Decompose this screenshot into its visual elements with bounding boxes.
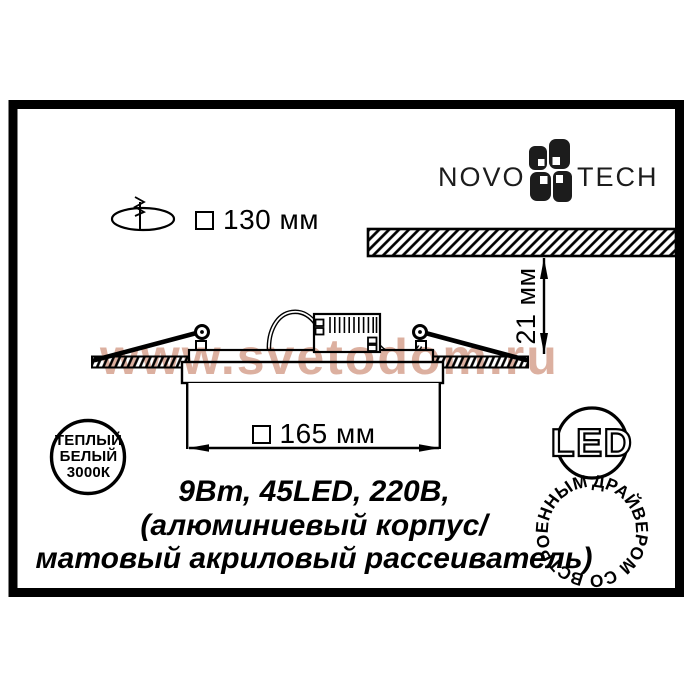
led-stamp-center: LED [551, 422, 634, 465]
driver-box [314, 314, 380, 352]
spec-line-2: (алюминиевый корпус/ [14, 509, 614, 543]
depth-dimension [540, 258, 548, 354]
width-dimension-label: 165 мм [186, 418, 441, 450]
warm-badge-line-3: 3000К [51, 465, 126, 481]
brand-logo-left: NOVO [438, 162, 524, 193]
clip-pivot-right [414, 326, 427, 339]
square-symbol-icon [195, 211, 214, 230]
cutout-dimension-label: 130 мм [195, 204, 319, 236]
spec-line-3: матовый акриловый рассеиватель) [14, 542, 614, 576]
warm-badge-line-1: ТЕПЛЫЙ [51, 433, 126, 449]
width-dimension-value: 165 мм [280, 418, 376, 450]
warm-white-badge: ТЕПЛЫЙ БЕЛЫЙ 3000К [51, 433, 126, 481]
body-upper-band [182, 362, 443, 383]
driver-wire-left [269, 312, 316, 351]
warm-badge-line-2: БЕЛЫЙ [51, 449, 126, 465]
diagram-canvas: LED ДРАЙВЕРОМ СО ВСТРОЕННЫМ [0, 0, 700, 700]
product-diagram: LED ДРАЙВЕРОМ СО ВСТРОЕННЫМ NOVO TECH 13… [0, 0, 700, 700]
spec-text: 9Вт, 45LED, 220В, (алюминиевый корпус/ м… [14, 475, 614, 576]
square-symbol-icon [252, 425, 271, 444]
brand-logo-right: TECH [577, 162, 659, 193]
drill-through-hole-icon [112, 197, 174, 230]
novotech-flower-icon [526, 138, 574, 204]
cutout-dimension-value: 130 мм [223, 204, 319, 236]
clip-pivot-left [196, 326, 209, 339]
depth-dimension-label: 21 мм [511, 260, 541, 352]
ceiling-section [368, 229, 676, 256]
